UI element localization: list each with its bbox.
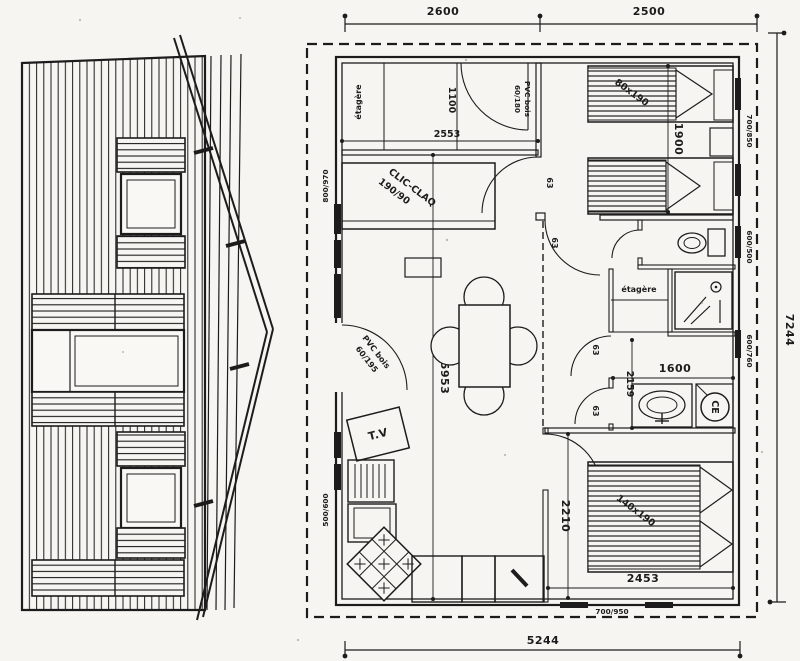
interior-door-label: PVC bois 60/180 [513,81,532,117]
bedroom-1: 80x190 1900 [588,64,733,214]
elevation-bottom-band [32,560,184,596]
elevation-drawing [22,35,273,620]
elevation-upper-window [117,138,185,268]
scanned-plan-page: étagère 1100 2553 PVC bois 60/180 CLIC-C… [0,0,800,661]
tv-cabinet: T.V [347,407,410,461]
kitchen-counters [412,556,544,602]
nightstand [710,128,733,156]
wall-shelf [405,258,441,277]
dim-top-right: 2500 [633,5,666,18]
bathroom-width-dim: 1600 [659,362,692,375]
wc [678,229,725,256]
door-width-shower: 63 [591,344,600,355]
entry-door-label: PVC bois 60/195 [351,334,392,378]
closet: étagère 1100 2553 PVC bois 60/180 [340,81,540,143]
hall-shelf-label: étagère [621,284,657,294]
closet-width-dim: 2553 [434,129,460,140]
plan-drawing: étagère 1100 2553 PVC bois 60/180 CLIC-C… [0,0,800,661]
bedroom2-width-dim: 2453 [627,572,660,585]
single-bed-2 [588,158,733,214]
elevation-mid-band [32,294,184,426]
svg-text:60/180: 60/180 [513,85,522,113]
window-right-bedroom1: 700/850 [745,114,754,147]
dim-top-left: 2600 [427,5,460,18]
kitchen: T.V [347,407,544,602]
window-right-bathroom: 600/760 [745,334,754,367]
water-heater: CE [696,384,733,427]
bathroom: CE [632,384,733,427]
single-bed-1 [588,66,733,122]
dim-bottom: 5244 [527,634,560,647]
closet-shelf-label: étagère [353,84,363,120]
window-right-wc: 600/500 [745,230,754,263]
bedroom-2: 140x190 2210 2453 [546,432,735,600]
bedroom1-dim: 1900 [672,123,685,156]
living-length-dim: 5953 [438,362,451,395]
elevation-lower-window [117,432,185,558]
window-bottom-bedroom2: 700/950 [595,607,628,616]
door-width-bathroom: 63 [591,405,600,416]
bedroom2-length-dim: 2210 [559,500,572,533]
window-left-bottom: 500/600 [321,493,330,526]
door-width-hall: 63 [545,177,554,188]
kitchen-drainer [348,460,394,502]
toilet [678,233,706,253]
closet-depth-dim: 1100 [446,87,457,114]
dim-right-side: 7244 [783,314,796,347]
water-heater-label: CE [709,400,720,413]
sofa-bed: CLIC-CLAQ 190/90 [342,163,495,229]
window-left-top: 800/970 [321,169,330,202]
door-width-bedroom1: 63 [550,237,559,248]
svg-text:PVC bois: PVC bois [523,81,532,117]
